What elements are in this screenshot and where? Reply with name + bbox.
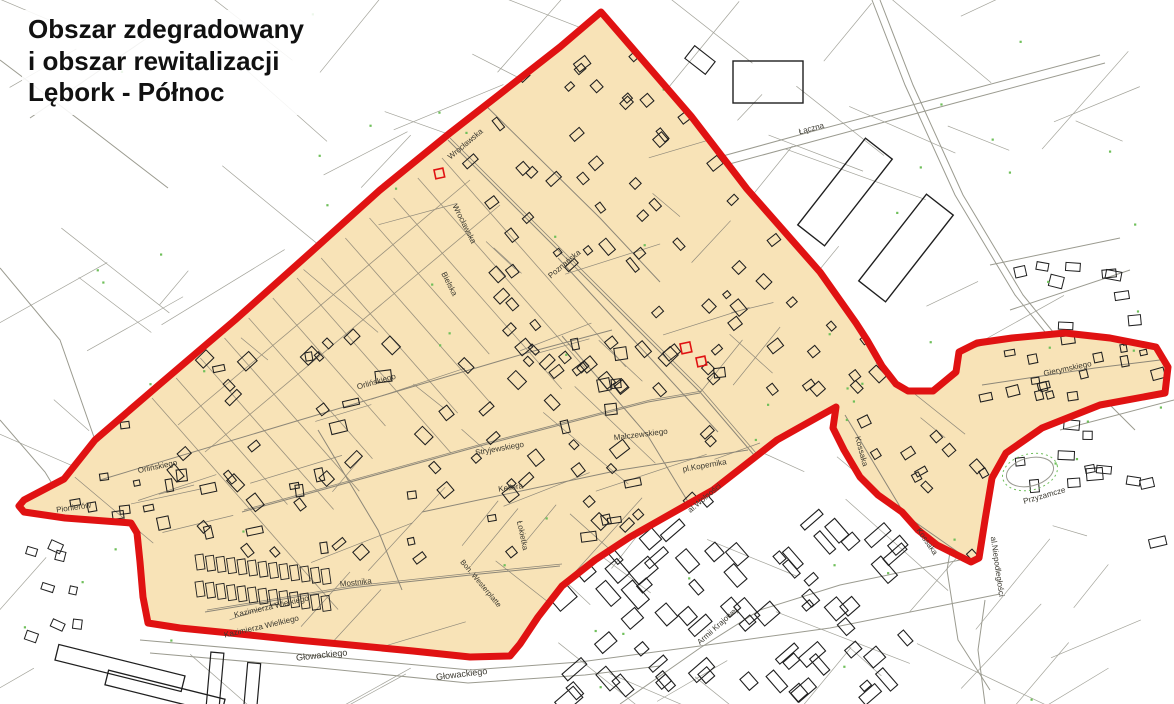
map-title-line1: Obszar zdegradowany	[28, 14, 304, 46]
map-stage: WrocławskaWrocławskaBielskaPoznańskaOrli…	[0, 0, 1174, 704]
map-title: Obszar zdegradowany i obszar rewitalizac…	[22, 10, 314, 115]
map-title-line2: i obszar rewitalizacji	[28, 46, 304, 78]
map-title-line3: Lębork - Północ	[28, 77, 304, 109]
